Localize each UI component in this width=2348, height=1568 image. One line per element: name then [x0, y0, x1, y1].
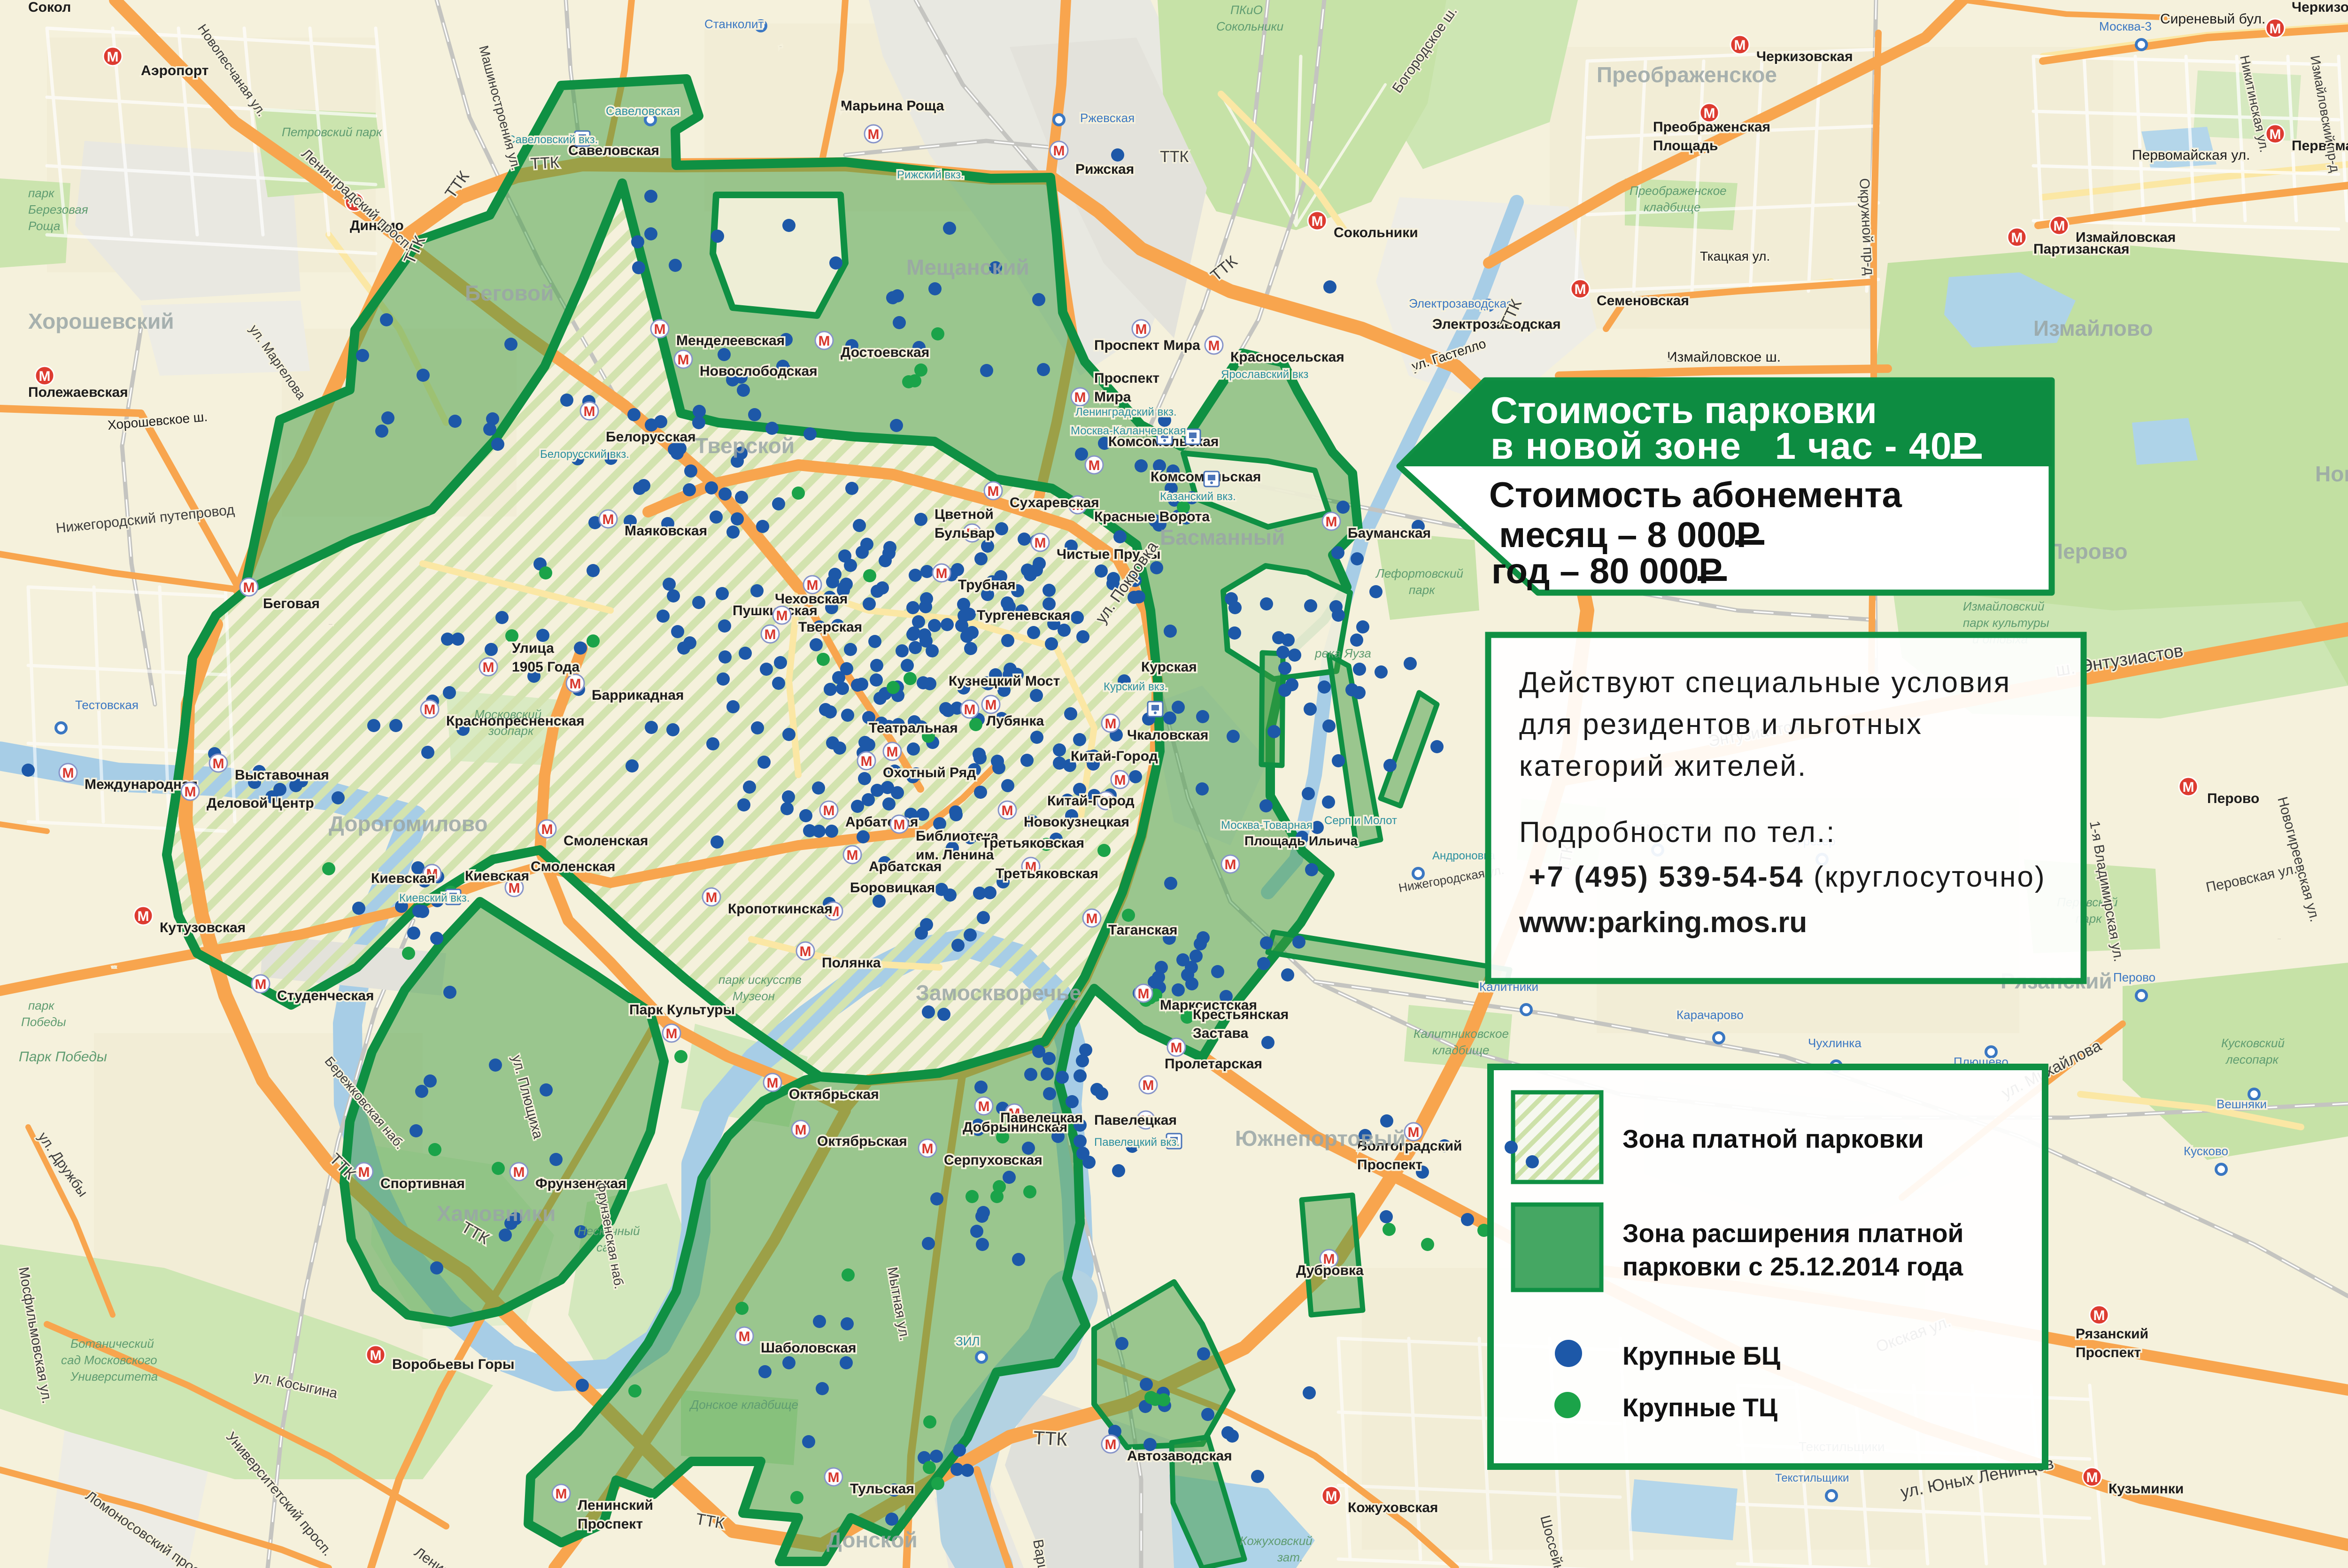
svg-text:Ботанический: Ботанический — [70, 1336, 154, 1351]
svg-text:год – 80 000Р: год – 80 000Р — [1491, 551, 1722, 591]
svg-text:М: М — [1208, 338, 1220, 354]
svg-text:Марьина Роща: Марьина Роща — [841, 110, 844, 111]
svg-text:Стоимость абонемента: Стоимость абонемента — [1489, 475, 1902, 515]
svg-text:в новой зоне 1 час - 40Р: в новой зоне 1 час - 40Р — [1491, 425, 1978, 467]
svg-text:М: М — [765, 627, 776, 642]
svg-text:Октябрьская: Октябрьская — [817, 1134, 907, 1149]
svg-text:Смоленская: Смоленская — [564, 833, 648, 849]
svg-text:М: М — [1326, 514, 1337, 530]
svg-text:Кусковский: Кусковский — [2221, 1036, 2285, 1050]
svg-text:Электрозаводская: Электрозаводская — [1432, 317, 1561, 332]
svg-text:Третьяковская: Третьяковская — [996, 866, 1098, 881]
svg-text:Хорошевский: Хорошевский — [28, 309, 174, 333]
svg-text:Карачарово: Карачарово — [1676, 1008, 1744, 1022]
svg-text:Хамовники: Хамовники — [437, 1201, 556, 1226]
svg-text:Киевский вкз.: Киевский вкз. — [399, 892, 470, 904]
svg-text:М: М — [1002, 803, 1013, 819]
svg-text:Белорусский вкз.: Белорусский вкз. — [540, 448, 629, 461]
svg-text:Трубная: Трубная — [958, 577, 1016, 593]
svg-text:Электрозаводская: Электрозаводская — [1409, 296, 1513, 310]
svg-text:Курская: Курская — [1141, 659, 1197, 675]
svg-text:Охотный Ряд: Охотный Ряд — [883, 765, 976, 780]
svg-text:Кутузовская: Кутузовская — [160, 920, 246, 935]
svg-text:кладбище: кладбище — [1644, 200, 1700, 214]
svg-text:Серп и Молот: Серп и Молот — [1324, 814, 1397, 827]
svg-text:М: М — [1143, 1078, 1154, 1093]
svg-text:Сокольники: Сокольники — [1334, 225, 1418, 240]
svg-text:Воробьевы Горы: Воробьевы Горы — [392, 1357, 514, 1372]
svg-text:Савеловский вкз.: Савеловский вкз. — [507, 133, 598, 146]
svg-text:Проспект: Проспект — [2076, 1345, 2141, 1360]
svg-text:сад Московского: сад Московского — [61, 1353, 157, 1367]
svg-text:Тульская: Тульская — [850, 1481, 914, 1497]
svg-text:Измайловская: Измайловская — [2076, 230, 2176, 245]
svg-text:Павелецкая: Павелецкая — [1094, 1112, 1177, 1128]
svg-text:М: М — [1575, 282, 1586, 297]
svg-text:река Яуза: река Яуза — [780, 46, 782, 47]
svg-text:Проспект Мира: Проспект Мира — [1094, 338, 1200, 353]
svg-text:М: М — [1035, 535, 1046, 551]
svg-text:для резидентов и льготных: для резидентов и льготных — [1519, 708, 1923, 741]
svg-text:Кропоткинская: Кропоткинская — [728, 901, 833, 917]
svg-text:Фрунзенская: Фрунзенская — [535, 1176, 626, 1191]
svg-text:Ткацкая ул.: Ткацкая ул. — [1700, 249, 1770, 263]
svg-text:М: М — [964, 702, 976, 718]
svg-text:Парк Победы: Парк Победы — [19, 1049, 107, 1065]
svg-text:М: М — [483, 660, 494, 675]
svg-text:М: М — [39, 369, 51, 384]
svg-text:Вешняки: Вешняки — [2217, 1097, 2267, 1111]
svg-text:Пролетарская: Пролетарская — [1165, 1056, 1262, 1072]
svg-text:Крупные ТЦ: Крупные ТЦ — [1622, 1393, 1777, 1422]
svg-text:Спортивная: Спортивная — [380, 1176, 465, 1191]
svg-text:Текстильщики: Текстильщики — [1775, 1472, 1849, 1484]
svg-text:ТТК: ТТК — [1160, 148, 1189, 166]
svg-text:Полянка: Полянка — [822, 955, 881, 971]
svg-text:Тестовская: Тестовская — [75, 698, 139, 712]
svg-text:Китай-Город: Китай-Город — [1047, 793, 1135, 809]
svg-text:Сиреневый бул.: Сиреневый бул. — [2160, 11, 2265, 27]
svg-text:Москва-Каланчевская: Москва-Каланчевская — [1071, 425, 1186, 437]
svg-text:Московский: Московский — [474, 707, 541, 721]
svg-text:Березовая: Березовая — [28, 202, 88, 216]
svg-text:Выставочная: Выставочная — [235, 767, 329, 783]
svg-text:Павелецкий вкз.: Павелецкий вкз. — [1094, 1136, 1180, 1149]
svg-text:ТТК: ТТК — [530, 154, 559, 173]
svg-text:кладбище: кладбище — [1432, 1043, 1489, 1057]
svg-text:Крестьянская: Крестьянская — [1193, 1007, 1289, 1022]
svg-text:+7 (495) 539-54-54 (круглосуто: +7 (495) 539-54-54 (круглосуточно) — [1519, 861, 2046, 893]
svg-text:М: М — [922, 1141, 934, 1157]
svg-text:Автозаводская: Автозаводская — [1127, 1448, 1232, 1464]
svg-text:Кузьминки: Кузьминки — [2109, 1481, 2184, 1497]
svg-text:М: М — [513, 1165, 525, 1180]
svg-text:Музеон: Музеон — [733, 989, 775, 1003]
svg-text:Красные Ворота: Красные Ворота — [1094, 509, 1210, 525]
svg-text:М: М — [988, 484, 999, 499]
svg-text:М: М — [776, 608, 788, 624]
svg-text:М: М — [1312, 214, 1323, 229]
svg-text:Беговая: Беговая — [263, 596, 320, 611]
svg-text:ЗИЛ: ЗИЛ — [956, 1334, 980, 1348]
svg-text:М: М — [1734, 38, 1746, 53]
svg-text:Киевская: Киевская — [465, 868, 529, 884]
svg-text:М: М — [1326, 1489, 1337, 1504]
svg-text:Мира: Мира — [1094, 389, 1131, 405]
svg-text:М: М — [894, 817, 905, 833]
svg-text:Баррикадная: Баррикадная — [592, 687, 684, 703]
svg-text:Парк Культуры: Парк Культуры — [629, 1002, 735, 1018]
svg-text:М: М — [370, 1348, 382, 1363]
svg-text:М: М — [138, 909, 149, 924]
svg-text:Беговой: Беговой — [465, 281, 554, 305]
svg-text:М: М — [2011, 230, 2023, 246]
svg-text:М: М — [1171, 1040, 1182, 1056]
svg-text:Преображенское: Преображенское — [1597, 62, 1777, 87]
svg-text:М: М — [2270, 127, 2281, 142]
svg-text:Калитниковское: Калитниковское — [1413, 1027, 1509, 1041]
svg-text:Кусково: Кусково — [2184, 1144, 2228, 1158]
svg-text:М: М — [358, 1165, 370, 1180]
svg-text:М: М — [847, 848, 858, 863]
svg-text:М: М — [678, 352, 689, 368]
svg-text:Тургеневская: Тургеневская — [977, 608, 1070, 623]
svg-text:парк: парк — [1409, 583, 1436, 597]
svg-text:Победы: Победы — [21, 1015, 66, 1029]
svg-text:Первомайская ул.: Первомайская ул. — [2132, 147, 2250, 163]
svg-text:Лубянка: Лубянка — [986, 713, 1044, 729]
svg-text:М: М — [819, 333, 830, 349]
svg-text:М: М — [1089, 458, 1100, 473]
svg-text:Новослободская: Новослободская — [700, 363, 818, 379]
svg-text:М: М — [767, 1075, 779, 1091]
svg-text:Роща: Роща — [28, 219, 60, 233]
svg-text:Улица 1905 года: Улица 1905 года — [329, 624, 332, 625]
svg-text:М: М — [795, 1122, 807, 1138]
svg-text:М: М — [978, 1099, 990, 1114]
svg-text:Сухаревская: Сухаревская — [1010, 495, 1099, 510]
svg-text:Таганская: Таганская — [1108, 922, 1177, 938]
svg-text:Третьяковская: Третьяковская — [981, 835, 1084, 851]
svg-text:Сокольники: Сокольники — [1216, 19, 1283, 33]
svg-text:Семеновская: Семеновская — [1597, 293, 1689, 309]
svg-text:М: М — [2086, 1470, 2098, 1485]
svg-text:Полежаевская: Полежаевская — [28, 385, 128, 400]
svg-text:М: М — [868, 127, 880, 142]
svg-text:Москва-Товарная: Москва-Товарная — [1221, 819, 1313, 832]
svg-text:М: М — [213, 756, 224, 772]
svg-text:М: М — [861, 754, 873, 769]
svg-text:Кузнецкий Мост: Кузнецкий Мост — [949, 673, 1060, 689]
svg-text:Бауманская: Бауманская — [1348, 525, 1431, 541]
svg-text:М: М — [602, 512, 614, 527]
svg-text:Площадь: Площадь — [1653, 138, 1718, 154]
svg-text:М: М — [654, 322, 666, 337]
svg-text:Рижская: Рижская — [1075, 162, 1134, 177]
svg-text:Новоги: Новоги — [2315, 462, 2348, 486]
svg-text:Достоевская: Достоевская — [841, 345, 929, 360]
svg-text:Зона платной парковки: Зона платной парковки — [1622, 1124, 1924, 1153]
svg-text:Измайловский: Измайловский — [1963, 599, 2044, 613]
svg-text:Измайловское ш.: Измайловское ш. — [1667, 349, 1781, 365]
svg-text:Крупные БЦ: Крупные БЦ — [1622, 1341, 1780, 1370]
svg-text:М: М — [1225, 857, 1236, 873]
svg-text:Казанский вкз.: Казанский вкз. — [1160, 490, 1236, 503]
svg-text:Дорогомилово: Дорогомилово — [329, 811, 487, 836]
svg-text:Улица: Улица — [512, 641, 554, 656]
svg-text:Черкизовская: Черкизовская — [2292, 0, 2348, 15]
svg-text:М: М — [1114, 772, 1126, 788]
svg-text:Курский вкз.: Курский вкз. — [1104, 680, 1167, 693]
svg-text:Донской: Донской — [826, 1528, 918, 1552]
svg-text:Рижский вкз.: Рижский вкз. — [897, 169, 964, 181]
svg-text:Киевская: Киевская — [371, 871, 435, 886]
svg-text:Савеловская: Савеловская — [606, 104, 680, 118]
svg-text:Ленинский: Ленинский — [578, 1498, 653, 1513]
svg-text:М: М — [739, 1329, 750, 1344]
svg-text:М: М — [2054, 218, 2065, 234]
svg-text:М: М — [828, 1470, 840, 1485]
svg-text:Преображенская: Преображенская — [1653, 119, 1770, 135]
svg-text:Ржевская: Ржевская — [1080, 111, 1135, 125]
svg-text:М: М — [2183, 780, 2194, 795]
svg-text:М: М — [1135, 322, 1147, 337]
svg-text:Марьина Роща: Марьина Роща — [841, 98, 944, 114]
svg-text:Аэропорт: Аэропорт — [141, 63, 209, 78]
svg-text:М: М — [1074, 390, 1086, 405]
svg-text:парк искусств: парк искусств — [718, 973, 802, 987]
svg-text:М: М — [2093, 1308, 2105, 1323]
svg-text:парк культуры: парк культуры — [1963, 616, 2049, 630]
svg-text:Подробности по тел.:: Подробности по тел.: — [1519, 816, 1836, 849]
svg-text:лесопарк: лесопарк — [2225, 1052, 2279, 1066]
svg-text:Белорусская: Белорусская — [606, 429, 696, 445]
svg-text:М: М — [887, 744, 898, 760]
svg-text:Перово: Перово — [2113, 970, 2155, 984]
svg-text:Сокол: Сокол — [28, 0, 71, 15]
svg-text:Ленинградский вкз.: Ленинградский вкз. — [1075, 406, 1177, 418]
svg-text:М: М — [1138, 986, 1150, 1002]
svg-text:Донское кладбище: Донское кладбище — [689, 1398, 798, 1412]
svg-text:М: М — [185, 784, 196, 800]
svg-text:Басманный: Басманный — [1160, 525, 1285, 549]
svg-text:Перово: Перово — [2207, 791, 2259, 806]
svg-text:Проспект: Проспект — [578, 1516, 643, 1532]
svg-text:Тверская: Тверская — [798, 619, 862, 635]
svg-text:Чеховская: Чеховская — [775, 591, 848, 607]
svg-text:парк: парк — [28, 186, 55, 200]
svg-text:Застава: Застава — [1193, 1026, 1249, 1041]
svg-text:зат.: зат. — [1277, 1550, 1303, 1564]
svg-text:Театральная: Театральная — [869, 720, 958, 736]
svg-text:река Яуза: река Яуза — [1314, 646, 1371, 660]
svg-text:Петровский парк: Петровский парк — [282, 125, 383, 139]
svg-text:Зона расширения платной: Зона расширения платной — [1622, 1219, 1963, 1248]
svg-text:Менделеевская: Менделеевская — [676, 333, 785, 348]
svg-text:Станколит: Станколит — [704, 17, 764, 31]
svg-text:Маяковская: Маяковская — [625, 523, 707, 539]
svg-text:ТТК: ТТК — [1033, 1428, 1068, 1450]
svg-text:категорий жителей.: категорий жителей. — [1519, 750, 1807, 782]
svg-text:Чкаловская: Чкаловская — [1127, 727, 1208, 743]
svg-text:Рязанский: Рязанский — [2076, 1326, 2148, 1342]
svg-text:Кожуховский: Кожуховский — [1240, 1534, 1313, 1548]
svg-text:Площадь Ильича: Площадь Ильича — [1244, 834, 1358, 848]
svg-text:М: М — [556, 1486, 567, 1502]
svg-text:1905 Года: 1905 Года — [512, 659, 580, 675]
svg-text:М: М — [1086, 911, 1098, 927]
svg-text:М: М — [255, 977, 267, 992]
svg-text:Москва-3: Москва-3 — [2099, 19, 2152, 33]
svg-text:Боровицкая: Боровицкая — [850, 880, 935, 896]
svg-text:Университета: Университета — [70, 1369, 158, 1383]
svg-text:М: М — [2270, 21, 2281, 37]
svg-text:Южнепортовый: Южнепортовый — [1235, 1126, 1406, 1151]
svg-text:Измайлово: Измайлово — [2033, 316, 2153, 340]
svg-text:М: М — [62, 765, 74, 781]
svg-text:М: М — [823, 803, 835, 819]
svg-text:М: М — [706, 890, 718, 905]
svg-text:Проспект: Проспект — [1094, 371, 1159, 386]
svg-text:Шаболовская: Шаболовская — [761, 1340, 857, 1356]
svg-text:М: М — [1105, 716, 1117, 732]
svg-text:М: М — [1053, 143, 1065, 159]
svg-text:ПКиО: ПКиО — [1230, 3, 1263, 17]
svg-text:М: М — [666, 1026, 678, 1042]
svg-text:Красносельская: Красносельская — [1230, 349, 1344, 365]
svg-text:Тверской: Тверской — [695, 433, 795, 458]
svg-text:Цветной: Цветной — [935, 507, 994, 522]
svg-text:М: М — [243, 580, 255, 595]
svg-text:Октябрьская: Октябрьская — [789, 1087, 879, 1102]
svg-text:Кожуховская: Кожуховская — [1348, 1500, 1438, 1515]
svg-text:Проспект: Проспект — [1357, 1157, 1422, 1173]
svg-text:Дубровка: Дубровка — [1296, 1263, 1364, 1278]
svg-text:Лефортовский: Лефортовский — [1375, 566, 1463, 580]
svg-text:Павелецкая: Павелецкая — [1000, 1110, 1083, 1126]
svg-text:Перово: Перово — [2047, 539, 2128, 564]
svg-text:www:parking.mos.ru: www:parking.mos.ru — [1519, 906, 1807, 939]
svg-text:ул. Гастелло: ул. Гастелло — [1413, 371, 1416, 371]
svg-text:М: М — [584, 404, 595, 419]
svg-text:Деловой Центр: Деловой Центр — [207, 796, 314, 811]
svg-text:Новокузнецкая: Новокузнецкая — [1024, 814, 1129, 830]
svg-text:Чухлинка: Чухлинка — [1808, 1036, 1861, 1050]
svg-text:М: М — [570, 676, 581, 692]
svg-text:Серпуховская: Серпуховская — [944, 1152, 1043, 1168]
svg-text:М: М — [541, 822, 553, 837]
svg-text:М: М — [800, 944, 811, 959]
svg-text:парк: парк — [28, 998, 55, 1012]
svg-text:Мещанский: Мещанский — [906, 255, 1029, 279]
svg-text:М: М — [107, 49, 119, 65]
svg-text:Бульвар: Бульвар — [935, 525, 995, 541]
svg-text:М: М — [1105, 1437, 1117, 1452]
svg-text:Китай-Город: Китай-Город — [1071, 749, 1158, 764]
svg-text:Замоскворечье: Замоскворечье — [916, 981, 1081, 1005]
svg-text:М: М — [424, 702, 436, 718]
svg-text:М: М — [936, 566, 948, 581]
svg-text:Ярославский вкз: Ярославский вкз — [1221, 368, 1308, 381]
svg-text:парковки с 25.12.2014 года: парковки с 25.12.2014 года — [1622, 1252, 1963, 1281]
svg-text:Студенческая: Студенческая — [277, 988, 374, 1004]
svg-text:зоопарк: зоопарк — [488, 724, 534, 738]
svg-text:месяц – 8 000Р: месяц – 8 000Р — [1489, 515, 1760, 555]
svg-text:Преображенское: Преображенское — [1630, 184, 1727, 198]
svg-text:М: М — [985, 697, 997, 713]
svg-text:Действуют специальные условия: Действуют специальные условия — [1519, 666, 2011, 699]
svg-text:Смоленская: Смоленская — [531, 859, 615, 874]
